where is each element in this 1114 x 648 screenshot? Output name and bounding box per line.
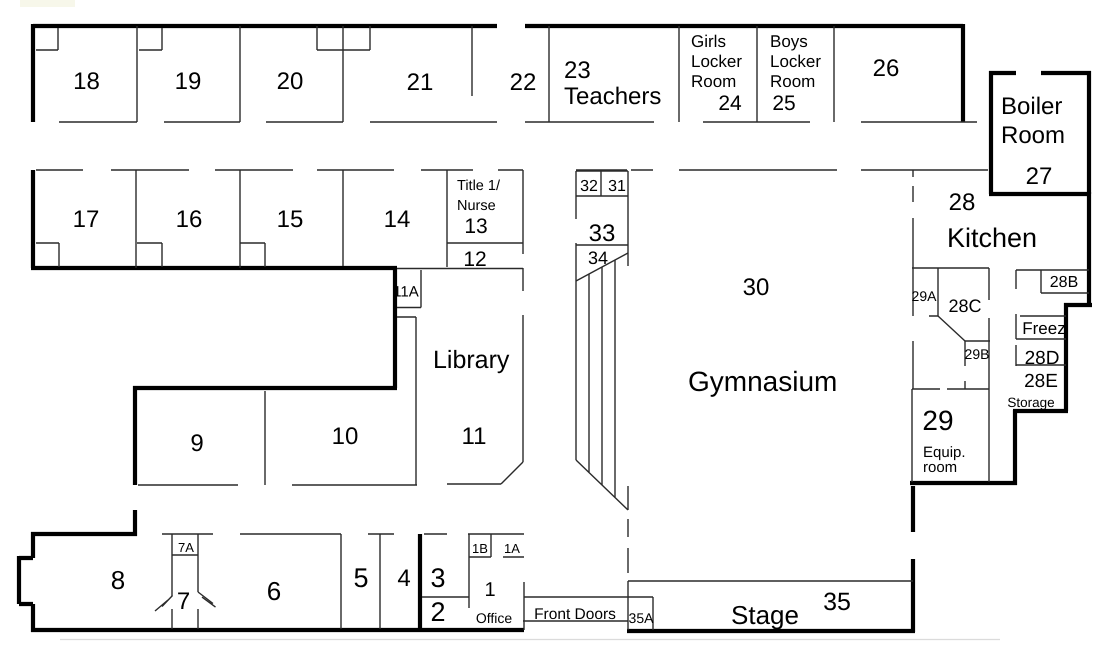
- svg-text:7: 7: [177, 588, 190, 615]
- svg-text:1B: 1B: [472, 541, 488, 556]
- svg-text:Stage: Stage: [731, 600, 799, 630]
- svg-text:15: 15: [277, 206, 304, 233]
- svg-text:6: 6: [267, 576, 281, 606]
- svg-text:Boiler: Boiler: [1001, 93, 1062, 120]
- svg-text:Office: Office: [476, 610, 513, 626]
- svg-text:5: 5: [353, 563, 368, 593]
- svg-text:10: 10: [332, 423, 359, 450]
- svg-text:20: 20: [277, 68, 304, 95]
- svg-text:13: 13: [464, 215, 487, 238]
- svg-text:35: 35: [823, 588, 851, 616]
- svg-text:Library: Library: [433, 346, 510, 374]
- svg-text:27: 27: [1026, 163, 1053, 190]
- svg-text:28B: 28B: [1050, 274, 1078, 291]
- svg-text:21: 21: [407, 69, 434, 96]
- svg-text:Teachers: Teachers: [564, 83, 661, 110]
- svg-text:Nurse: Nurse: [457, 198, 496, 214]
- svg-text:35A: 35A: [629, 610, 655, 626]
- svg-text:11: 11: [462, 423, 487, 450]
- svg-text:32: 32: [580, 178, 598, 195]
- svg-text:19: 19: [175, 68, 202, 95]
- svg-text:29A: 29A: [912, 288, 938, 304]
- svg-text:Locker: Locker: [770, 52, 821, 71]
- svg-text:Title 1/: Title 1/: [457, 178, 501, 194]
- svg-text:28C: 28C: [948, 296, 981, 316]
- svg-text:26: 26: [873, 55, 900, 82]
- svg-text:Freez: Freez: [1022, 319, 1065, 338]
- svg-text:31: 31: [608, 178, 626, 195]
- svg-text:22: 22: [510, 69, 537, 96]
- svg-text:7A: 7A: [178, 540, 194, 555]
- svg-text:25: 25: [772, 92, 795, 115]
- svg-text:1A: 1A: [504, 541, 520, 556]
- svg-text:Storage: Storage: [1007, 395, 1054, 410]
- svg-text:9: 9: [190, 430, 203, 457]
- svg-text:Boys: Boys: [770, 32, 808, 51]
- svg-text:Kitchen: Kitchen: [947, 223, 1037, 253]
- svg-text:16: 16: [176, 206, 203, 233]
- svg-text:Room: Room: [691, 72, 736, 91]
- svg-text:28D: 28D: [1025, 348, 1060, 369]
- svg-text:Room: Room: [770, 72, 815, 91]
- svg-text:14: 14: [384, 206, 411, 233]
- svg-text:8: 8: [111, 565, 125, 595]
- svg-text:17: 17: [73, 206, 100, 233]
- svg-text:4: 4: [397, 565, 410, 592]
- svg-text:3: 3: [430, 563, 445, 593]
- svg-text:28: 28: [949, 189, 976, 216]
- svg-text:1: 1: [484, 579, 495, 601]
- svg-text:34: 34: [588, 248, 608, 268]
- svg-text:Front Doors: Front Doors: [534, 606, 616, 623]
- svg-text:Room: Room: [1001, 122, 1065, 149]
- svg-text:29: 29: [922, 405, 953, 436]
- svg-text:Locker: Locker: [691, 52, 742, 71]
- svg-text:2: 2: [430, 597, 445, 627]
- svg-text:33: 33: [589, 220, 616, 247]
- svg-text:30: 30: [743, 274, 770, 301]
- svg-text:28E: 28E: [1024, 371, 1058, 392]
- svg-text:23: 23: [564, 57, 591, 84]
- svg-text:Girls: Girls: [691, 32, 726, 51]
- svg-text:room: room: [923, 459, 957, 476]
- svg-text:12: 12: [463, 248, 486, 271]
- svg-text:Gymnasium: Gymnasium: [688, 366, 837, 397]
- svg-text:29B: 29B: [965, 346, 990, 362]
- svg-text:24: 24: [718, 92, 742, 115]
- svg-text:18: 18: [73, 68, 100, 95]
- svg-text:11A: 11A: [393, 284, 419, 301]
